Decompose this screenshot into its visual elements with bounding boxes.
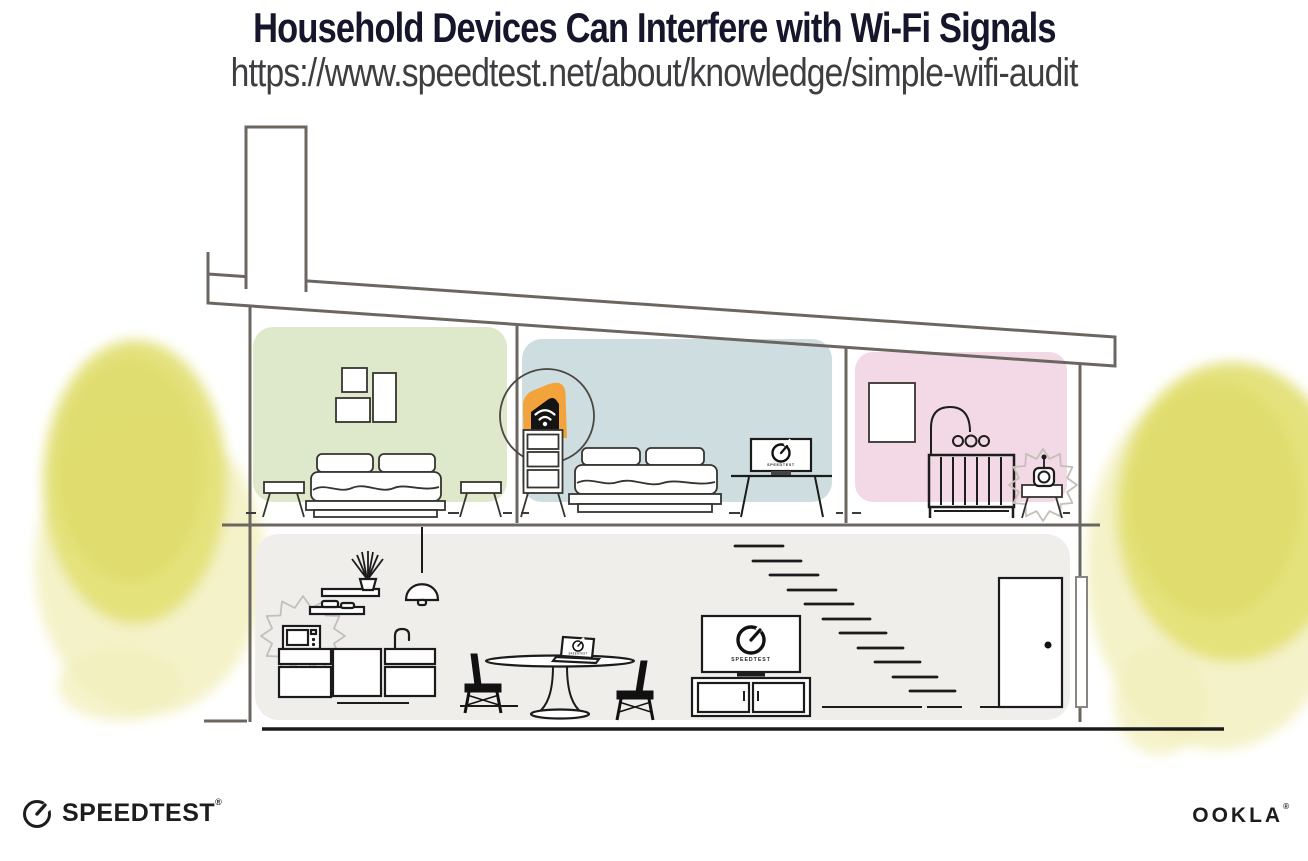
downspout-pipe [1076, 577, 1087, 707]
tv-screen-label: SPEEDTEST [731, 657, 771, 663]
speedtest-logo: SPEEDTEST® [20, 796, 222, 830]
monitor-screen-label: SPEEDTEST [767, 463, 795, 467]
doorknob [1045, 642, 1052, 649]
dresser-icon [521, 430, 565, 517]
ookla-logo: OOKLA® [1192, 804, 1292, 828]
source-url: https://www.speedtest.net/about/knowledg… [231, 52, 1078, 94]
picture-frame-icon [373, 373, 396, 422]
house-cross-section-illustration: SPEEDTEST [0, 0, 1308, 861]
speedtest-gauge-icon [20, 796, 54, 830]
page-title: Household Devices Can Interfere with Wi-… [253, 4, 1056, 52]
header: Household Devices Can Interfere with Wi-… [0, 0, 1308, 94]
door-icon [999, 578, 1062, 707]
picture-frame-icon [342, 368, 367, 392]
right-tree [1086, 362, 1308, 755]
picture-frame-icon [869, 383, 915, 442]
picture-frame-icon [336, 398, 370, 422]
monitor-speedtest-icon: SPEEDTEST [751, 439, 811, 475]
media-console-icon [692, 678, 810, 716]
registered-mark: ® [215, 797, 222, 807]
microwave-icon [283, 626, 320, 649]
chimney [246, 127, 306, 291]
left-tree [35, 340, 265, 721]
tv-group: SPEEDTEST [692, 616, 810, 716]
infographic-page: Household Devices Can Interfere with Wi-… [0, 0, 1308, 861]
speedtest-wordmark: SPEEDTEST® [62, 799, 222, 828]
tv-speedtest-icon [702, 616, 800, 672]
laptop-screen-label: SPEEDTEST [568, 652, 587, 656]
registered-mark: ® [1283, 802, 1292, 811]
